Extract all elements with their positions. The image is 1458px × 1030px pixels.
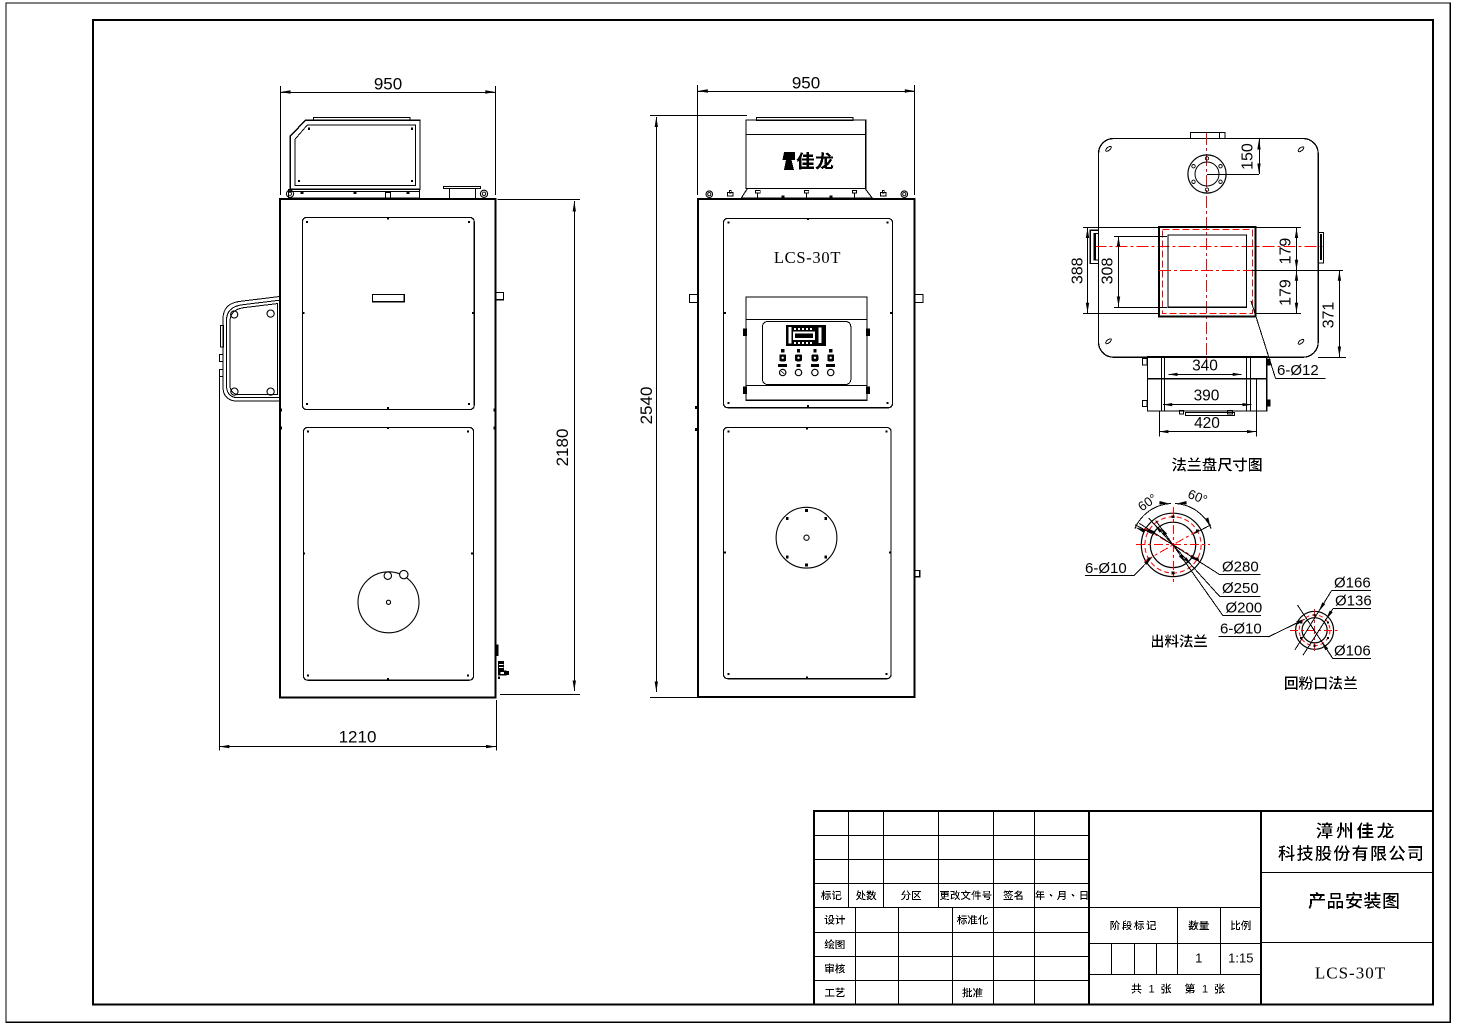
svg-text:2180: 2180 (553, 429, 572, 467)
svg-text:LCS-30T: LCS-30T (774, 248, 841, 267)
svg-text:950: 950 (792, 74, 820, 93)
svg-text:150: 150 (1239, 143, 1256, 170)
svg-text:1: 1 (1195, 951, 1202, 966)
svg-text:60°: 60° (1135, 491, 1160, 515)
svg-text:Ø136: Ø136 (1335, 593, 1372, 610)
svg-text:Ø200: Ø200 (1226, 600, 1263, 617)
svg-text:2540: 2540 (637, 387, 656, 425)
svg-text:6-Ø10: 6-Ø10 (1220, 621, 1262, 638)
svg-text:60°: 60° (1186, 486, 1210, 507)
svg-text:390: 390 (1194, 388, 1220, 405)
svg-text:1: 1 (1202, 983, 1208, 995)
svg-text:Ø166: Ø166 (1334, 575, 1371, 592)
svg-text:950: 950 (374, 75, 402, 94)
svg-text:1210: 1210 (339, 728, 377, 747)
svg-text:179: 179 (1278, 238, 1295, 265)
svg-text:1: 1 (1148, 983, 1154, 995)
svg-text:388: 388 (1070, 257, 1087, 284)
svg-text:LCS-30T: LCS-30T (1315, 964, 1386, 983)
svg-text:1:15: 1:15 (1228, 951, 1253, 966)
svg-text:340: 340 (1192, 358, 1218, 375)
svg-text:420: 420 (1194, 415, 1220, 432)
svg-text:6-Ø12: 6-Ø12 (1277, 362, 1319, 379)
svg-text:371: 371 (1321, 302, 1338, 329)
svg-text:179: 179 (1278, 279, 1295, 306)
svg-text:Ø280: Ø280 (1222, 559, 1259, 576)
svg-text:6-Ø10: 6-Ø10 (1085, 560, 1127, 577)
svg-text:Ø250: Ø250 (1222, 580, 1259, 597)
svg-text:Ø106: Ø106 (1334, 643, 1371, 660)
svg-text:308: 308 (1100, 258, 1117, 285)
